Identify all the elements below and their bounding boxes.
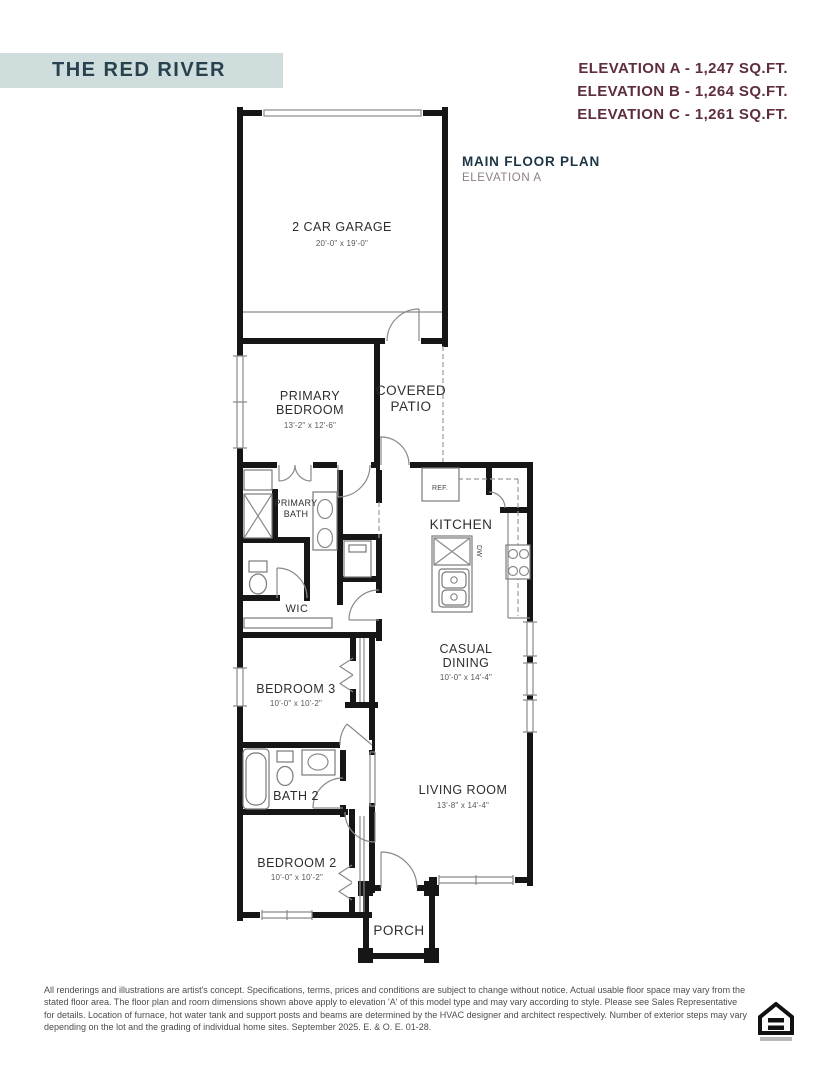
kitchen-label: KITCHEN	[430, 517, 493, 532]
bedroom2-closet-shelf	[360, 816, 364, 912]
washer	[344, 541, 371, 577]
casual-dining-label-2: DINING	[443, 656, 490, 670]
primary-toilet	[249, 561, 267, 594]
covered-patio-label-1: COVERED	[376, 383, 446, 398]
bedroom3-dims: 10'-0" x 10'-2"	[270, 699, 322, 708]
ref-label: REF.	[432, 485, 448, 492]
hall-door	[349, 590, 379, 620]
porch-posts	[358, 881, 439, 963]
living-room-label: LIVING ROOM	[419, 783, 508, 797]
garage-door	[264, 110, 421, 116]
bath2-label: BATH 2	[273, 789, 319, 803]
bedroom3-closet-bifold	[340, 658, 353, 692]
dw-label: DW	[475, 545, 482, 557]
primary-bath-label-2: BATH	[284, 509, 309, 519]
disclaimer-text: All renderings and illustrations are art…	[44, 984, 748, 1034]
equal-housing-logo-caption	[760, 1037, 792, 1041]
bedroom2-label: BEDROOM 2	[257, 856, 337, 870]
cased-opening	[370, 752, 375, 806]
bedroom3-closet-shelf	[360, 638, 364, 702]
bedroom2-closet-bifold	[339, 865, 352, 900]
equal-housing-logo	[758, 1002, 794, 1049]
primary-bath-label-1: PRIMARY	[275, 498, 318, 508]
porch-label: PORCH	[373, 923, 424, 938]
living-room-dims: 13'-8" x 14'-4"	[437, 801, 489, 810]
garage-dims: 20'-0" x 19'-0"	[316, 239, 368, 248]
toilet-room-door	[277, 568, 307, 598]
wic-label: WIC	[286, 603, 309, 615]
casual-dining-label-1: CASUAL	[439, 642, 492, 656]
primary-bedroom-dims: 13'-2" x 12'-6"	[284, 421, 336, 430]
linen-shelf	[244, 470, 272, 490]
covered-patio-label-2: PATIO	[390, 399, 431, 414]
range	[506, 545, 530, 579]
wic-shelf	[244, 618, 332, 628]
bath2-toilet	[277, 751, 293, 786]
casual-dining-dims: 10'-0" x 14'-4"	[440, 673, 492, 682]
bathtub	[243, 749, 269, 809]
bath2-vanity	[302, 750, 335, 775]
floor-plan-drawing: 2 CAR GARAGE 20'-0" x 19'-0" PRIMARY BED…	[0, 0, 835, 1080]
walls	[240, 110, 530, 956]
kitchen-island	[432, 536, 472, 612]
bedroom3-label: BEDROOM 3	[256, 682, 336, 696]
shower	[244, 494, 272, 538]
bedroom2-dims: 10'-0" x 10'-2"	[271, 873, 323, 882]
front-door	[381, 852, 417, 888]
primary-bedroom-label-2: BEDROOM	[276, 403, 344, 417]
garage-label: 2 CAR GARAGE	[292, 220, 392, 234]
primary-bedroom-label-1: PRIMARY	[280, 389, 340, 403]
